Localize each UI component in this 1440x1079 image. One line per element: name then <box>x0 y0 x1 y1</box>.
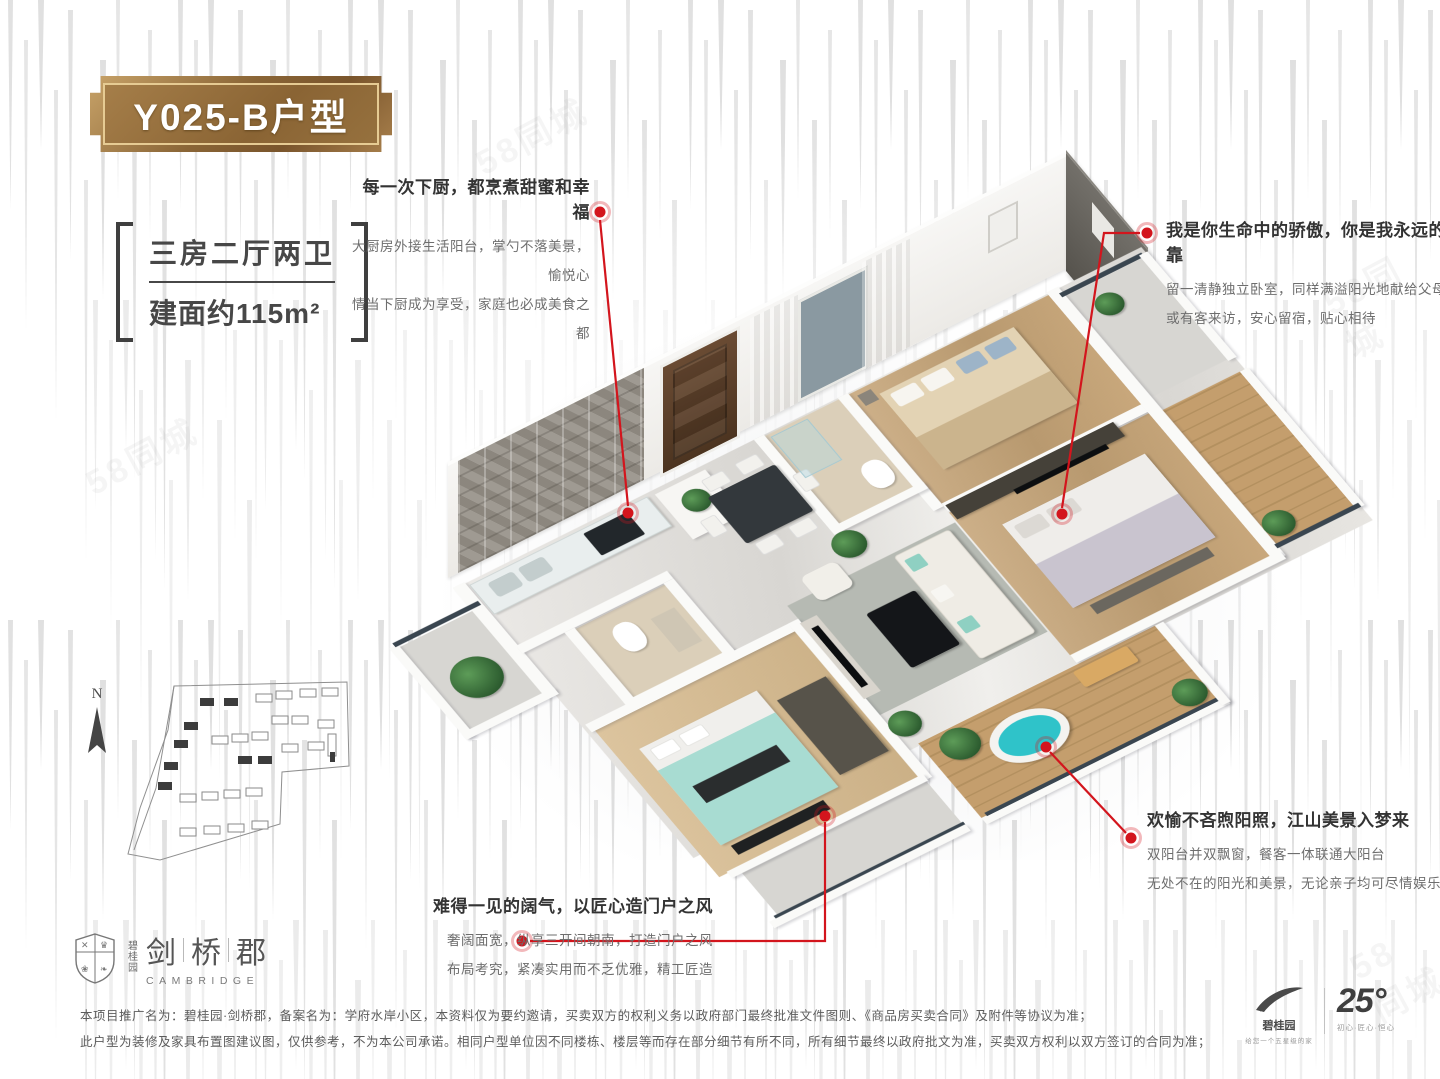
annotation-title: 欢愉不吝煦阳照，江山美景入梦来 <box>1147 806 1440 831</box>
annotation-title: 难得一见的阔气，以匠心造门户之风 <box>285 892 713 917</box>
corner-logos: 碧桂园 给您一个五星级的家 25° 初心·匠心·恒心 <box>1244 984 1395 1045</box>
annotation-body-line: 大厨房外接生活阳台，掌勺不落美景，愉悦心 <box>350 232 590 290</box>
spec-rooms: 三房二厅两卫 <box>149 232 335 272</box>
annotation-body-line: 或有客来访，安心留宿，贴心相待 <box>1166 304 1440 333</box>
compass: N <box>84 686 110 764</box>
spec-area: 建面约115m² <box>149 292 320 332</box>
annotation-body-line: 无处不在的阳光和美景，无论亲子均可尽情娱乐 <box>1147 869 1440 898</box>
svg-text:♛: ♛ <box>100 940 108 950</box>
disclaimer-line-2: 此户型为装修及家具布置图建议图，仅供参考，不为本公司承诺。相同户型单位因不同楼栋… <box>80 1031 1211 1050</box>
svg-text:❧: ❧ <box>100 964 108 974</box>
corner-divider <box>1324 988 1325 1034</box>
brand-name-char: 郡 <box>236 928 266 972</box>
compass-arrow-icon <box>86 703 108 759</box>
anniversary-mark: 25° <box>1337 984 1395 1018</box>
phoenix-swoosh-icon <box>1252 984 1306 1014</box>
svg-text:❀: ❀ <box>81 964 89 974</box>
compass-label: N <box>84 686 110 703</box>
annotation-body-line: 奢阔面宽，纵享三开间朝南，打造门户之风 <box>285 926 713 955</box>
brand-group-char: 碧 <box>128 941 138 952</box>
annotation-view: 欢愉不吝煦阳照，江山美景入梦来 双阳台并双飘窗，餐客一体联通大阳台 无处不在的阳… <box>1147 806 1440 898</box>
brand-name: 剑 桥 郡 <box>146 928 266 972</box>
unit-title: Y025-B户型 <box>133 87 348 141</box>
annotation-body-line: 留一清静独立卧室，同样满溢阳光地献给父母 <box>1166 275 1440 304</box>
brand-name-separator <box>183 938 184 962</box>
bracket-left <box>116 222 133 342</box>
brand-group-vertical: 碧 桂 园 <box>128 941 138 974</box>
annotation-body-line: 情当下厨成为享受，家庭也必成美食之都 <box>350 290 590 348</box>
brand-logo: ✕ ♛ ❀ ❧ 碧 桂 园 剑 桥 郡 CAMBRIDGE <box>72 928 266 987</box>
poster-canvas: { "colors":{"accent_red":"#d3151d","bron… <box>0 0 1440 1079</box>
plaque-inner-frame: Y025-B户型 <box>103 83 379 145</box>
brand-group-char: 园 <box>128 963 138 974</box>
brand-name-en: CAMBRIDGE <box>146 975 266 987</box>
site-plan <box>122 678 354 874</box>
svg-text:✕: ✕ <box>81 940 89 950</box>
annotation-body-line: 双阳台并双飘窗，餐客一体联通大阳台 <box>1147 840 1440 869</box>
brand-name-char: 桥 <box>191 928 221 972</box>
annotation-body-line: 布局考究，紧凑实用而不乏优雅，精工匠造 <box>285 955 713 984</box>
annotation-parents: 我是你生命中的骄傲，你是我永远的依靠 留一清静独立卧室，同样满溢阳光地献给父母 … <box>1166 216 1440 333</box>
annotation-title: 我是你生命中的骄傲，你是我永远的依靠 <box>1166 216 1440 266</box>
annotation-kitchen: 每一次下厨，都烹煮甜蜜和幸福 大厨房外接生活阳台，掌勺不落美景，愉悦心 情当下厨… <box>350 173 590 348</box>
spec-divider <box>149 281 335 283</box>
unit-specs: 三房二厅两卫 建面约115m² <box>116 222 368 342</box>
anniversary-slogan: 初心·匠心·恒心 <box>1337 1022 1395 1033</box>
corner-group-name: 碧桂园 <box>1244 1017 1314 1033</box>
brand-name-char: 剑 <box>146 928 176 972</box>
annotation-title: 每一次下厨，都烹煮甜蜜和幸福 <box>350 173 590 223</box>
brand-group-char: 桂 <box>128 952 138 963</box>
corner-group-tagline: 给您一个五星级的家 <box>1244 1035 1314 1045</box>
unit-title-plaque: Y025-B户型 <box>90 76 392 152</box>
shield-crest-icon: ✕ ♛ ❀ ❧ <box>72 932 118 984</box>
disclaimer-line-1: 本项目推广名为：碧桂园·剑桥郡，备案名为：学府水岸小区，本资料仅为要约邀请，买卖… <box>80 1005 1092 1024</box>
annotation-entry: 难得一见的阔气，以匠心造门户之风 奢阔面宽，纵享三开间朝南，打造门户之风 布局考… <box>285 892 713 984</box>
wall-art <box>1092 202 1114 258</box>
wall-art <box>988 201 1018 254</box>
brand-name-separator <box>228 938 229 962</box>
